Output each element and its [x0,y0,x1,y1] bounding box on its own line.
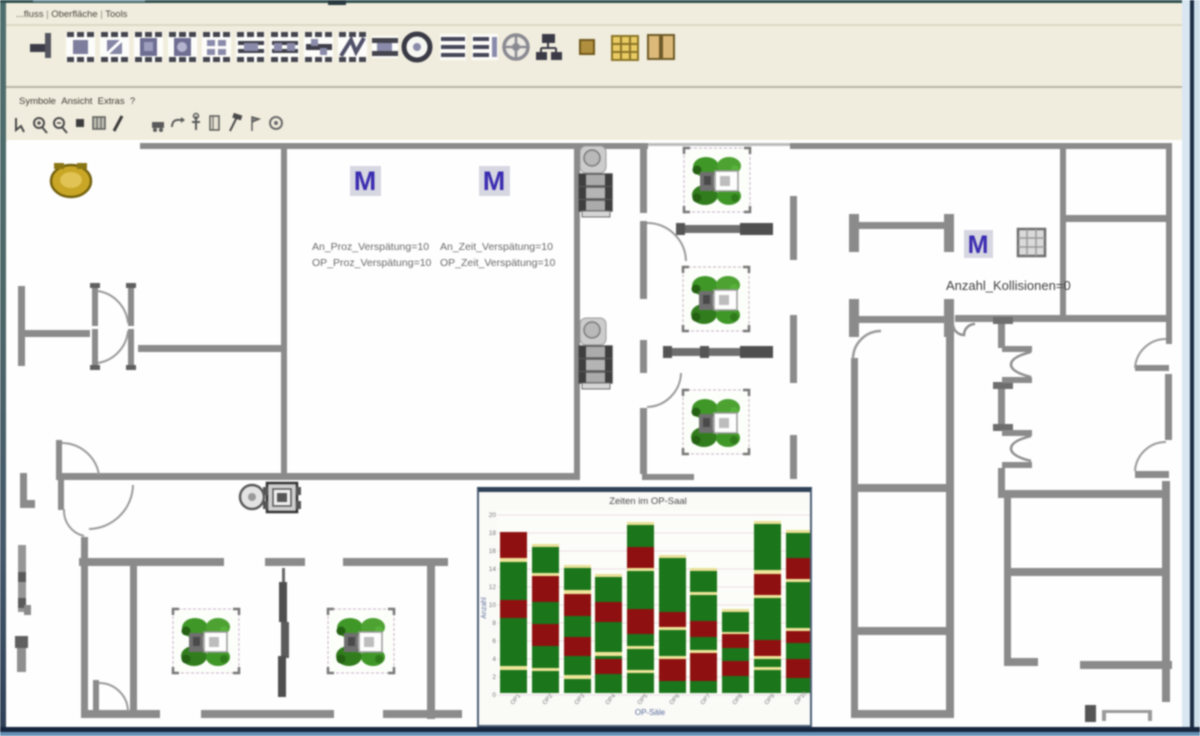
svg-text:M: M [483,166,506,196]
svg-text:2: 2 [492,674,496,681]
svg-text:8: 8 [492,620,496,627]
svg-text:4: 4 [492,656,496,663]
svg-text:0: 0 [492,692,496,699]
svg-text:20: 20 [489,512,497,519]
svg-text:6: 6 [492,638,496,645]
svg-text:M: M [968,231,989,259]
svg-text:18: 18 [489,530,497,537]
svg-text:Anzahl_Kollisionen=0: Anzahl_Kollisionen=0 [946,278,1071,293]
svg-text:Zeiten im OP-Saal: Zeiten im OP-Saal [609,496,687,507]
svg-text:OP_Zeit_Verspätung=10: OP_Zeit_Verspätung=10 [440,257,555,269]
svg-text:Anzahl: Anzahl [481,597,488,619]
svg-text:M: M [354,166,377,196]
svg-text:An_Proz_Verspätung=10: An_Proz_Verspätung=10 [312,241,429,253]
svg-text:14: 14 [489,566,497,573]
svg-text:12: 12 [489,584,497,591]
svg-text:OP_Proz_Verspätung=10: OP_Proz_Verspätung=10 [312,257,432,269]
svg-text:16: 16 [489,548,497,555]
svg-text:An_Zeit_Verspätung=10: An_Zeit_Verspätung=10 [440,241,553,253]
svg-text:10: 10 [489,602,497,609]
svg-text:OP-Säle: OP-Säle [635,708,666,717]
